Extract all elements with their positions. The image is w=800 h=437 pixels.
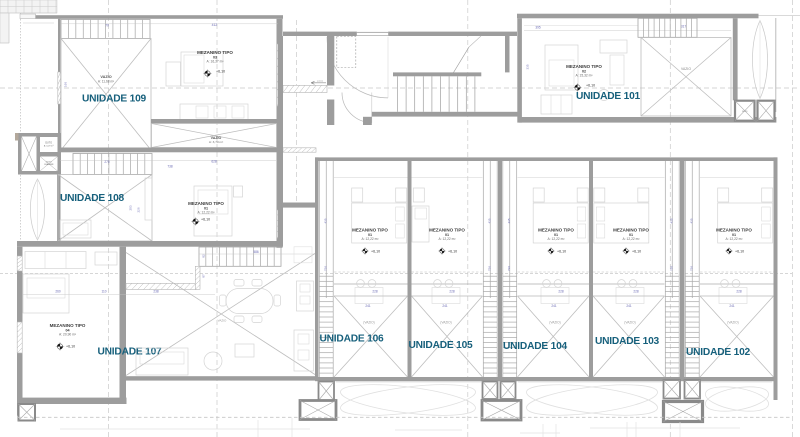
svg-text:+6,10: +6,10 bbox=[201, 218, 210, 222]
svg-text:628: 628 bbox=[211, 160, 217, 164]
svg-text:412: 412 bbox=[212, 23, 218, 27]
svg-text:CHAMINÉ: CHAMINÉ bbox=[44, 163, 54, 166]
svg-text:241: 241 bbox=[729, 304, 735, 308]
svg-text:736: 736 bbox=[689, 266, 693, 271]
svg-text:435: 435 bbox=[669, 218, 673, 223]
svg-text:203: 203 bbox=[129, 205, 133, 210]
svg-text:(VAZIO): (VAZIO) bbox=[624, 320, 635, 324]
svg-text:226: 226 bbox=[137, 207, 141, 212]
svg-text:VAZIO: VAZIO bbox=[211, 136, 222, 140]
svg-text:(VAZIO): (VAZIO) bbox=[440, 320, 451, 324]
svg-text:VAZIO: VAZIO bbox=[218, 319, 227, 323]
svg-text:MEZANINO TIPO: MEZANINO TIPO bbox=[197, 50, 233, 55]
svg-text:435: 435 bbox=[507, 218, 511, 223]
svg-text:(VAZIO): (VAZIO) bbox=[363, 320, 374, 324]
svg-text:395: 395 bbox=[535, 26, 541, 30]
svg-text:+6,10: +6,10 bbox=[216, 70, 225, 74]
svg-text:UNIDADE 106: UNIDADE 106 bbox=[319, 334, 384, 345]
svg-text:A: 12,22 m²: A: 12,22 m² bbox=[197, 211, 215, 215]
svg-text:228: 228 bbox=[449, 290, 455, 294]
svg-text:+6,10: +6,10 bbox=[371, 249, 380, 253]
svg-text:260: 260 bbox=[55, 290, 61, 294]
svg-text:A: 20,90 m²: A: 20,90 m² bbox=[59, 333, 77, 337]
svg-text:DUTO: DUTO bbox=[45, 142, 52, 145]
svg-text:A: 12,22 m²: A: 12,22 m² bbox=[622, 237, 640, 241]
svg-text:+6,10: +6,10 bbox=[448, 249, 457, 253]
svg-text:MEZANINO TIPO: MEZANINO TIPO bbox=[429, 227, 465, 232]
svg-text:A: 12,22 m²: A: 12,22 m² bbox=[438, 237, 456, 241]
svg-text:UNIDADE 105: UNIDADE 105 bbox=[408, 340, 473, 351]
svg-text:241: 241 bbox=[442, 304, 448, 308]
svg-text:82: 82 bbox=[202, 254, 206, 258]
svg-text:87: 87 bbox=[202, 274, 206, 278]
svg-text:MEZANINO TIPO: MEZANINO TIPO bbox=[613, 227, 649, 232]
svg-text:738: 738 bbox=[167, 165, 173, 169]
svg-text:228: 228 bbox=[736, 290, 742, 294]
svg-text:736: 736 bbox=[487, 266, 491, 271]
svg-text:MEZANINO TIPO: MEZANINO TIPO bbox=[352, 227, 388, 232]
svg-text:435: 435 bbox=[323, 218, 327, 223]
svg-text:586: 586 bbox=[253, 250, 259, 254]
svg-text:166: 166 bbox=[64, 82, 68, 87]
svg-text:228: 228 bbox=[633, 290, 639, 294]
svg-text:UNIDADE 101: UNIDADE 101 bbox=[576, 91, 641, 102]
svg-text:UNIDADE 102: UNIDADE 102 bbox=[686, 347, 751, 358]
svg-text:A: 11,68 m²: A: 11,68 m² bbox=[98, 79, 114, 83]
svg-text:MEZANINO TIPO: MEZANINO TIPO bbox=[188, 201, 224, 206]
svg-text:317: 317 bbox=[681, 25, 687, 29]
svg-text:A: 12,22 m²: A: 12,22 m² bbox=[361, 237, 379, 241]
svg-text:435: 435 bbox=[689, 218, 693, 223]
svg-text:241: 241 bbox=[365, 304, 371, 308]
svg-text:70: 70 bbox=[105, 24, 109, 28]
svg-text:270: 270 bbox=[104, 160, 110, 164]
svg-text:238: 238 bbox=[153, 290, 159, 294]
svg-text:MEZANINO TIPO: MEZANINO TIPO bbox=[566, 64, 602, 69]
svg-text:UNIDADE 103: UNIDADE 103 bbox=[595, 336, 660, 347]
svg-text:228: 228 bbox=[372, 290, 378, 294]
svg-text:335: 335 bbox=[526, 64, 530, 69]
svg-text:228: 228 bbox=[558, 290, 564, 294]
svg-text:MEZANINO TIPO: MEZANINO TIPO bbox=[50, 323, 86, 328]
svg-text:acesso: acesso bbox=[317, 80, 324, 82]
svg-text:DUTO: DUTO bbox=[742, 111, 748, 113]
svg-text:(VAZIO): (VAZIO) bbox=[727, 320, 738, 324]
svg-text:VAZIO: VAZIO bbox=[100, 75, 111, 79]
svg-text:A: 12,22 m²: A: 12,22 m² bbox=[725, 237, 743, 241]
svg-text:+6,10: +6,10 bbox=[632, 249, 641, 253]
svg-text:736: 736 bbox=[669, 266, 673, 271]
svg-text:A: 15,32 m²: A: 15,32 m² bbox=[575, 74, 593, 78]
svg-text:UNIDADE 108: UNIDADE 108 bbox=[60, 193, 125, 204]
svg-text:A: 0,29 m²: A: 0,29 m² bbox=[44, 145, 54, 148]
svg-text:DUTO: DUTO bbox=[46, 162, 52, 164]
svg-text:A: 12,22 m²: A: 12,22 m² bbox=[547, 237, 565, 241]
svg-text:+6,10: +6,10 bbox=[557, 249, 566, 253]
svg-text:241: 241 bbox=[551, 304, 557, 308]
svg-text:UNIDADE 109: UNIDADE 109 bbox=[82, 94, 147, 105]
svg-text:736: 736 bbox=[507, 266, 511, 271]
svg-text:A: 16,37 m²: A: 16,37 m² bbox=[206, 60, 224, 64]
svg-text:MEZANINO TIPO: MEZANINO TIPO bbox=[538, 227, 574, 232]
svg-text:+6,10: +6,10 bbox=[735, 249, 744, 253]
svg-text:VAZIO: VAZIO bbox=[681, 67, 691, 71]
svg-text:(VAZIO): (VAZIO) bbox=[549, 320, 560, 324]
svg-text:MEZANINO TIPO: MEZANINO TIPO bbox=[716, 227, 752, 232]
svg-text:110: 110 bbox=[101, 290, 106, 294]
svg-text:UNIDADE 104: UNIDADE 104 bbox=[503, 341, 568, 352]
svg-text:241: 241 bbox=[626, 304, 632, 308]
svg-text:+6,10: +6,10 bbox=[66, 345, 75, 349]
svg-text:736: 736 bbox=[323, 266, 327, 271]
svg-text:435: 435 bbox=[487, 218, 491, 223]
svg-text:A: 3,70 m²: A: 3,70 m² bbox=[209, 140, 223, 144]
svg-text:+6,10: +6,10 bbox=[586, 84, 595, 88]
